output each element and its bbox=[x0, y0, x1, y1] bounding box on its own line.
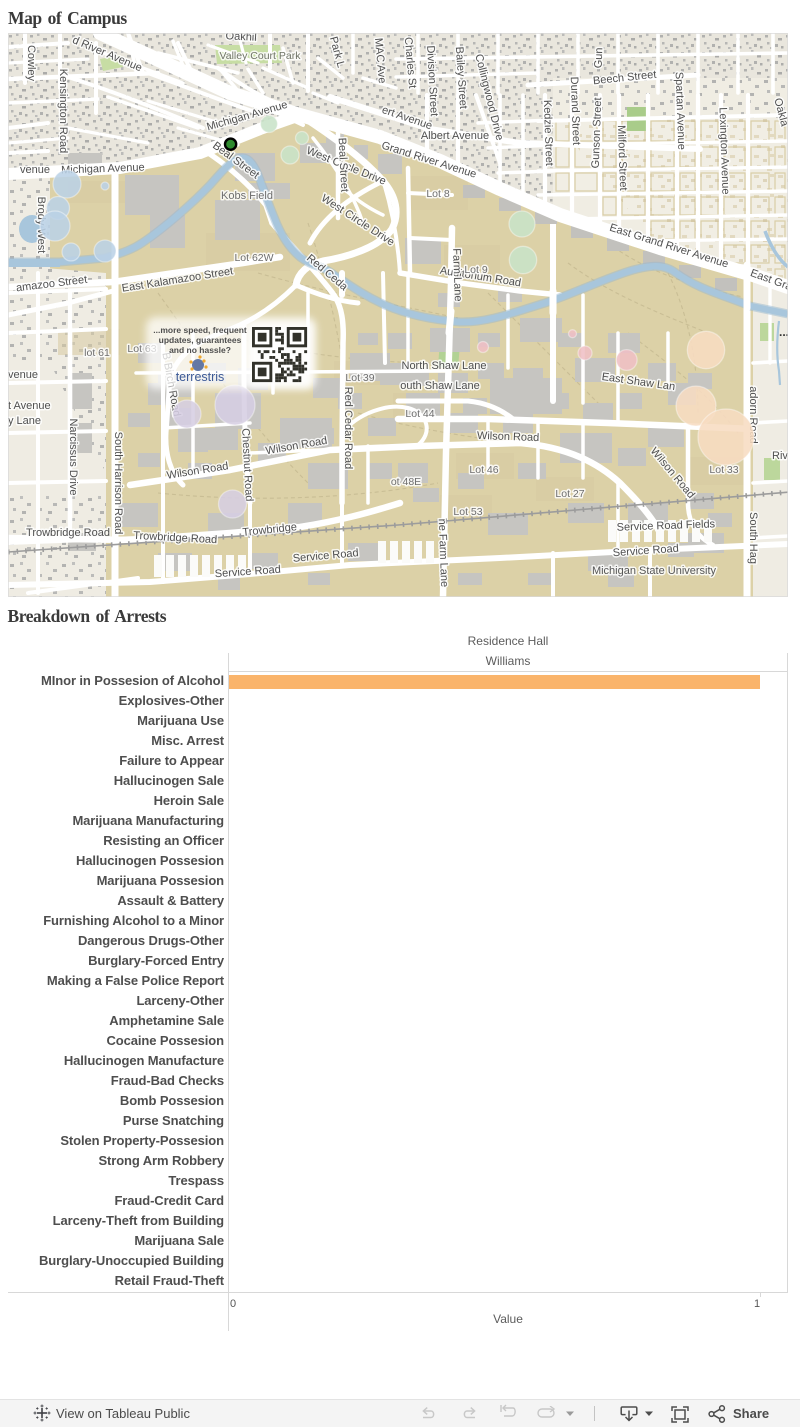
svg-text:Valley Court Park: Valley Court Park bbox=[220, 50, 302, 62]
svg-text:Milford Street: Milford Street bbox=[615, 125, 629, 191]
svg-text:Lot 8: Lot 8 bbox=[426, 188, 450, 200]
svg-text:Lot 62W: Lot 62W bbox=[234, 252, 273, 264]
svg-text:outh Shaw Lane: outh Shaw Lane bbox=[400, 380, 480, 392]
svg-text:Lot 39: Lot 39 bbox=[345, 372, 374, 384]
svg-text:y Lane: y Lane bbox=[8, 415, 41, 427]
svg-text:Kensington Road: Kensington Road bbox=[57, 69, 69, 153]
svg-text:Gunson Street: Gunson Street bbox=[590, 97, 604, 168]
svg-text:Albert Avenue: Albert Avenue bbox=[421, 130, 489, 142]
svg-text:Lot 27: Lot 27 bbox=[555, 488, 584, 500]
svg-text:and no hassle?: and no hassle? bbox=[169, 345, 231, 355]
svg-text:Narcissus Drive: Narcissus Drive bbox=[67, 418, 79, 495]
svg-text:North Shaw Lane: North Shaw Lane bbox=[402, 360, 487, 372]
svg-text:lot 61: lot 61 bbox=[84, 347, 110, 359]
svg-text:t Avenue: t Avenue bbox=[8, 400, 51, 412]
svg-text:Red Cedar Road: Red Cedar Road bbox=[342, 387, 354, 470]
svg-text:updates, guarantees: updates, guarantees bbox=[159, 335, 242, 345]
svg-text:Trowbridge Road: Trowbridge Road bbox=[26, 527, 110, 539]
svg-text:Lot 46: Lot 46 bbox=[469, 464, 498, 476]
svg-text:...more speed, frequent: ...more speed, frequent bbox=[153, 325, 247, 335]
svg-text:Kedzie Street: Kedzie Street bbox=[541, 100, 555, 166]
svg-text:South Hag: South Hag bbox=[747, 512, 759, 564]
svg-text:South Harrison Road: South Harrison Road bbox=[112, 432, 124, 535]
svg-text:ne Farm Lane: ne Farm Lane bbox=[436, 518, 450, 587]
svg-text:venue: venue bbox=[8, 369, 38, 381]
svg-text:Lot 53: Lot 53 bbox=[453, 506, 482, 518]
svg-text:Cowley: Cowley bbox=[25, 45, 37, 82]
svg-text:venue: venue bbox=[20, 164, 50, 176]
svg-text:...: ... bbox=[779, 325, 788, 339]
svg-text:Oakhil: Oakhil bbox=[225, 33, 257, 44]
svg-text:Gun: Gun bbox=[593, 47, 606, 68]
svg-text:Farm Lane: Farm Lane bbox=[450, 248, 464, 302]
svg-text:Lot 44: Lot 44 bbox=[405, 408, 434, 420]
svg-text:Durand Street: Durand Street bbox=[568, 76, 582, 145]
svg-text:Wilson Road: Wilson Road bbox=[477, 430, 540, 444]
svg-text:Kobs Field: Kobs Field bbox=[221, 190, 273, 202]
svg-text:Lot 9: Lot 9 bbox=[464, 264, 488, 276]
svg-text:Lot 33: Lot 33 bbox=[709, 464, 738, 476]
svg-text:terrestris: terrestris bbox=[176, 370, 225, 384]
svg-text:ot 48E: ot 48E bbox=[391, 476, 421, 488]
svg-text:Riv: Riv bbox=[772, 450, 788, 462]
svg-text:Michigan State University: Michigan State University bbox=[592, 565, 717, 577]
